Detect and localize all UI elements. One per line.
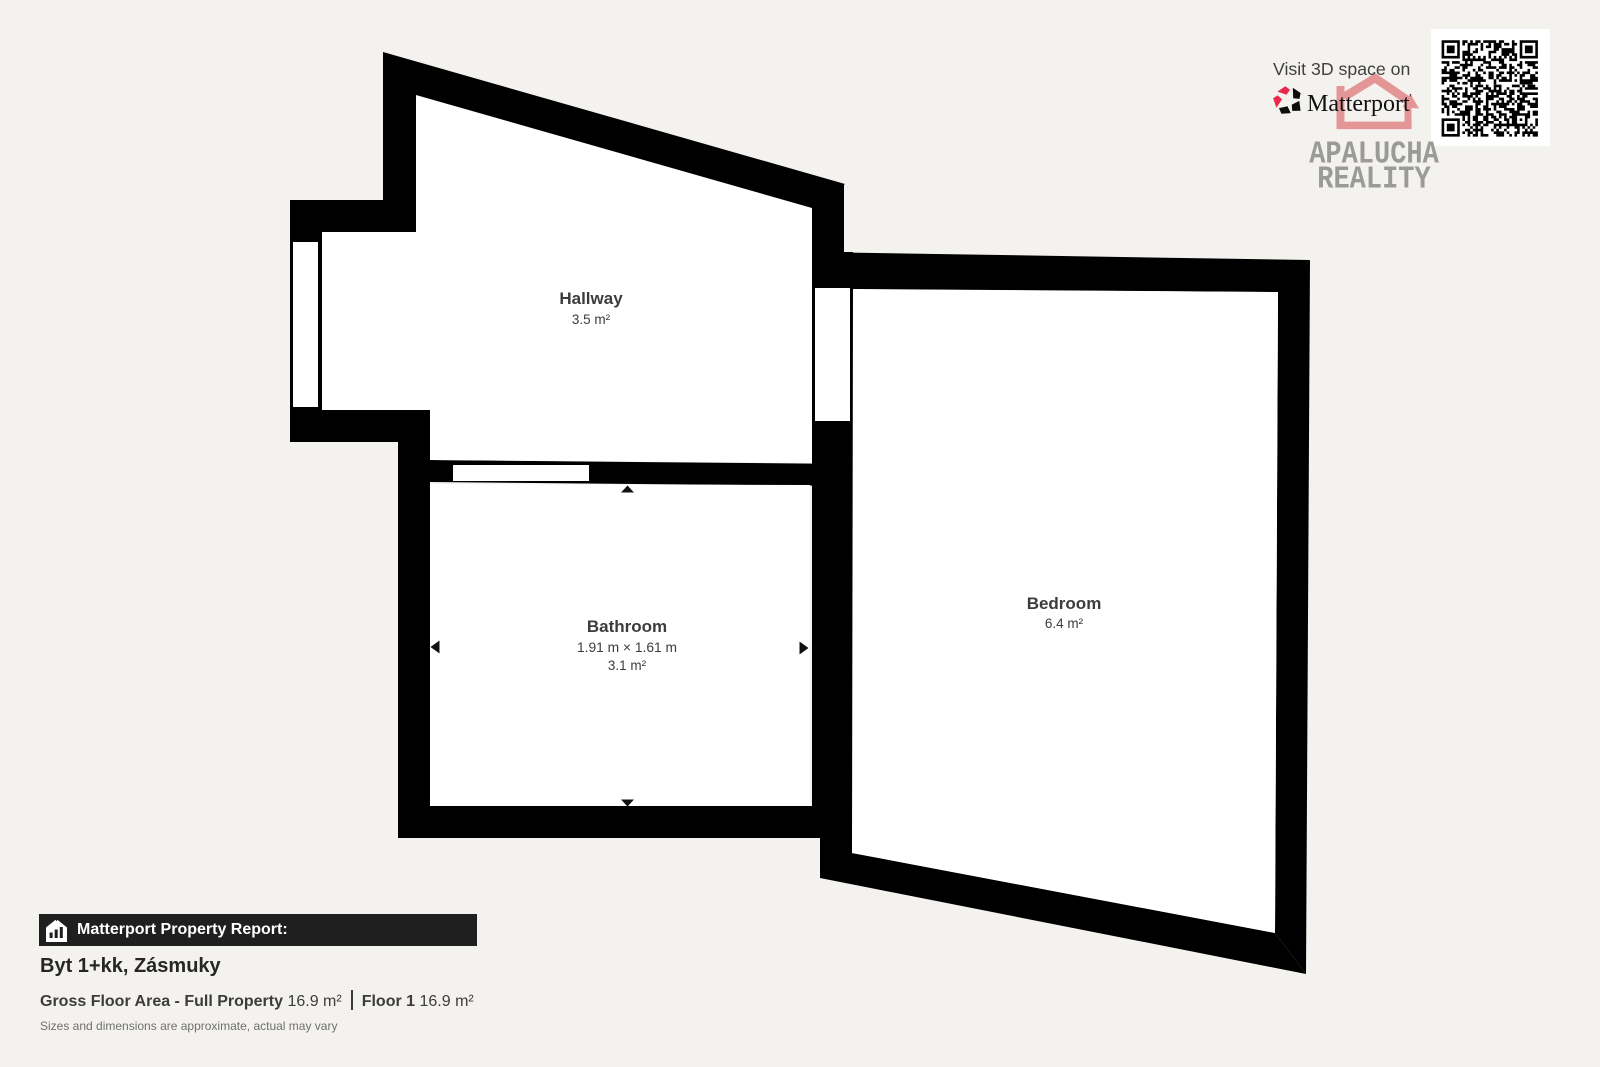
svg-text:3.1 m²: 3.1 m² <box>608 658 647 673</box>
svg-text:1.91 m × 1.61 m: 1.91 m × 1.61 m <box>577 640 677 655</box>
svg-text:3.5 m²: 3.5 m² <box>572 312 611 327</box>
svg-text:Bathroom: Bathroom <box>587 617 667 636</box>
svg-text:Bedroom: Bedroom <box>1027 594 1102 613</box>
svg-text:6.4 m²: 6.4 m² <box>1045 616 1084 631</box>
svg-text:Hallway: Hallway <box>559 289 623 308</box>
